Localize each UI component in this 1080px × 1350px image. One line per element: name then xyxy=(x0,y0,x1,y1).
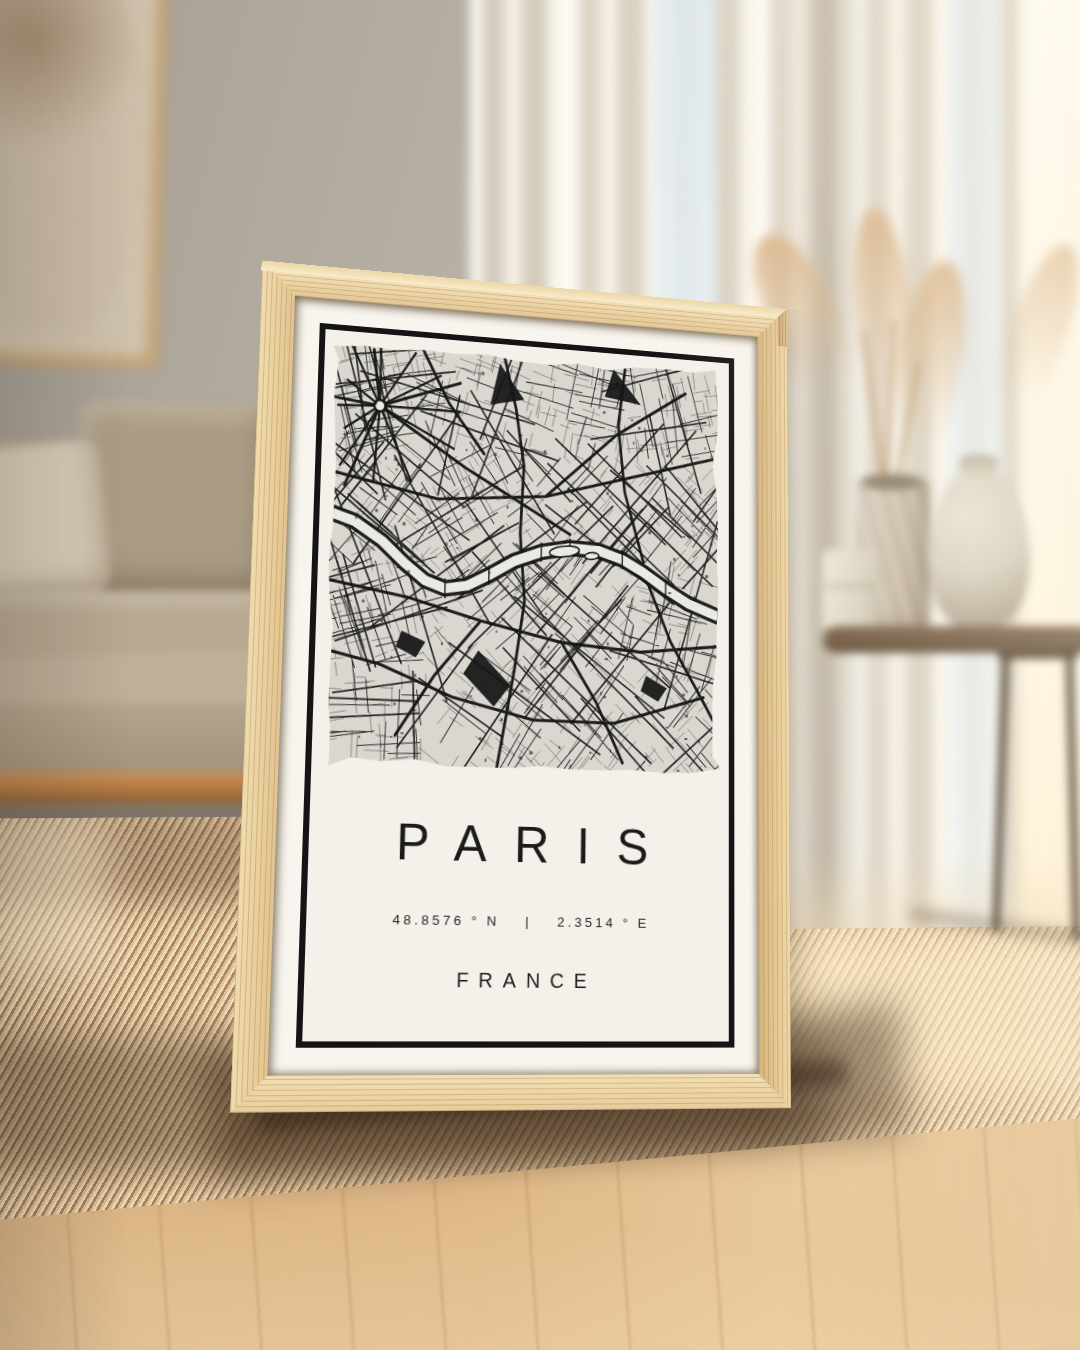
vase-neck xyxy=(960,456,999,474)
latitude-label: 48.8576 ° N xyxy=(392,912,499,929)
sofa-pillow xyxy=(0,439,111,603)
vase-opening xyxy=(861,474,923,490)
poster-title: PARIS xyxy=(367,811,675,877)
side-table-top xyxy=(824,626,1080,653)
ceramic-box xyxy=(822,550,880,634)
poster-caption: PARIS 48.8576 ° N | 2.3514 ° E FRANCE xyxy=(302,770,728,1034)
longitude-label: 2.3514 ° E xyxy=(557,914,649,931)
leaning-poster-frame: PARIS 48.8576 ° N | 2.3514 ° E FRANCE xyxy=(230,260,791,1112)
living-room-scene: PARIS 48.8576 ° N | 2.3514 ° E FRANCE xyxy=(0,0,1080,1350)
poster-coordinates: 48.8576 ° N | 2.3514 ° E xyxy=(392,912,649,931)
rug-sunlight-patch xyxy=(0,812,110,977)
coordinate-separator: | xyxy=(525,914,532,929)
paris-map-svg xyxy=(320,338,720,778)
frame-front-face: PARIS 48.8576 ° N | 2.3514 ° E FRANCE xyxy=(230,260,791,1112)
paris-map-poster: PARIS 48.8576 ° N | 2.3514 ° E FRANCE xyxy=(296,323,735,1048)
side-table-group xyxy=(760,200,1080,1000)
poster-country: FRANCE xyxy=(446,968,597,993)
table-leg xyxy=(992,652,1010,932)
paris-street-map xyxy=(320,338,720,778)
table-leg xyxy=(1065,648,1080,940)
pampas-plume xyxy=(982,236,1080,434)
wall-art-frame xyxy=(0,0,169,368)
ceramic-box-lid xyxy=(825,585,876,588)
frame-wood-bottom xyxy=(230,1074,791,1113)
table-stretcher xyxy=(998,652,1078,659)
poster-mat: PARIS 48.8576 ° N | 2.3514 ° E FRANCE xyxy=(267,296,758,1076)
round-ceramic-vase xyxy=(928,466,1030,632)
frame-wood-right xyxy=(757,306,791,1108)
wall-art-strokes xyxy=(0,0,146,332)
